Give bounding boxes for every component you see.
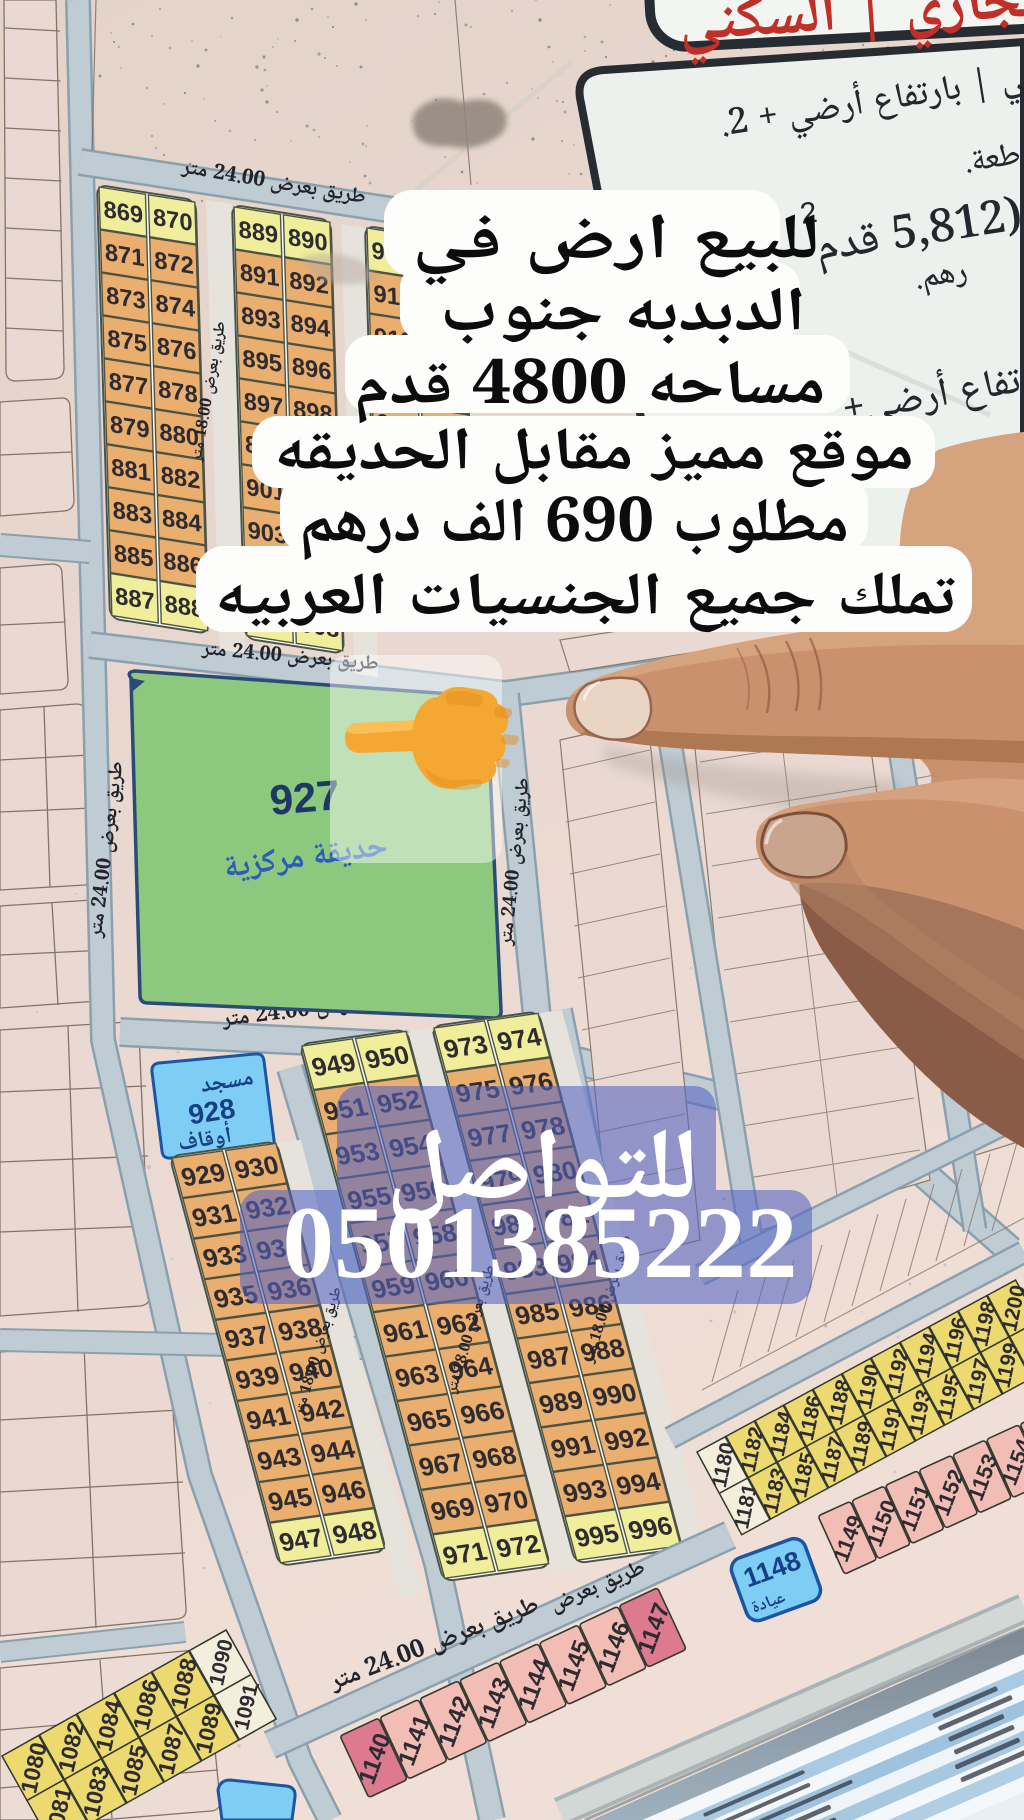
- svg-text:972: 972: [493, 1528, 544, 1563]
- svg-text:990: 990: [589, 1377, 640, 1412]
- svg-text:996: 996: [625, 1510, 676, 1545]
- svg-text:965: 965: [404, 1403, 455, 1438]
- svg-text:989: 989: [536, 1385, 587, 1420]
- svg-text:946: 946: [318, 1474, 369, 1509]
- svg-text:966: 966: [457, 1395, 508, 1430]
- svg-text:991: 991: [548, 1429, 599, 1464]
- svg-text:961: 961: [380, 1314, 431, 1349]
- svg-text:929: 929: [178, 1157, 229, 1192]
- svg-text:945: 945: [265, 1482, 316, 1517]
- svg-text:944: 944: [307, 1434, 358, 1469]
- svg-text:970: 970: [481, 1484, 532, 1519]
- svg-text:947: 947: [276, 1522, 327, 1557]
- svg-text:931: 931: [189, 1198, 240, 1233]
- svg-text:941: 941: [243, 1401, 294, 1436]
- svg-text:943: 943: [254, 1441, 305, 1476]
- svg-text:968: 968: [469, 1440, 520, 1475]
- svg-text:993: 993: [559, 1473, 610, 1508]
- svg-text:949: 949: [308, 1047, 359, 1082]
- svg-text:973: 973: [440, 1029, 491, 1064]
- svg-text:971: 971: [439, 1536, 490, 1571]
- svg-text:974: 974: [494, 1022, 545, 1057]
- svg-text:0501385222: 0501385222: [283, 1186, 798, 1300]
- svg-text:939: 939: [232, 1360, 283, 1395]
- svg-text:967: 967: [416, 1447, 467, 1482]
- svg-text:938: 938: [275, 1312, 326, 1347]
- svg-text:963: 963: [392, 1358, 443, 1393]
- svg-text:964: 964: [445, 1351, 496, 1386]
- svg-text:950: 950: [362, 1040, 413, 1075]
- svg-text:987: 987: [524, 1340, 575, 1375]
- svg-text:994: 994: [613, 1466, 664, 1501]
- svg-text:948: 948: [329, 1515, 380, 1550]
- svg-text:992: 992: [601, 1422, 652, 1457]
- svg-text:930: 930: [231, 1150, 282, 1185]
- svg-text:988: 988: [577, 1333, 628, 1368]
- svg-text:937: 937: [221, 1319, 272, 1354]
- svg-text:969: 969: [427, 1491, 478, 1526]
- svg-text:995: 995: [571, 1518, 622, 1553]
